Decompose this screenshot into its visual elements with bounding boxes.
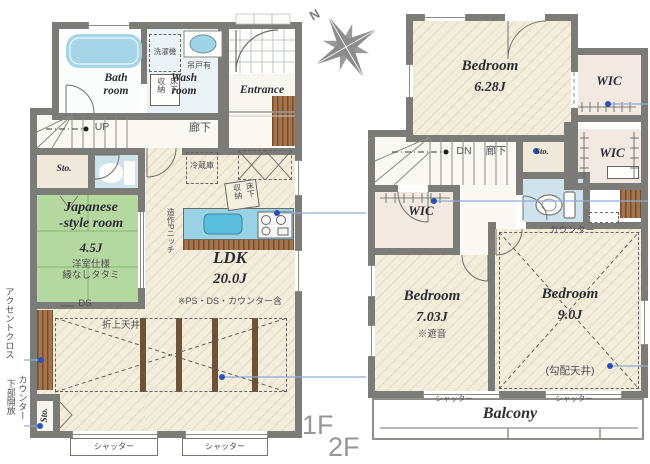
window (72, 431, 158, 438)
p-niche-label: 造作Pニッチ (166, 196, 175, 266)
shoe-cabinet (272, 96, 295, 146)
japanese-room-size: 4.5J (42, 241, 140, 256)
bedroom2-name: Bedroom (380, 288, 484, 305)
corridor-1f-label: 廊下 (180, 122, 220, 135)
wall (516, 179, 523, 195)
bedroom2-size: 7.03J (380, 310, 484, 326)
storage1-label: Sto. (50, 164, 78, 175)
window (641, 300, 648, 345)
louver-2f (620, 188, 641, 218)
shutter-box-left-1f: シャッター (70, 438, 158, 456)
wall (488, 222, 495, 392)
underfloor-storage-kitchen-label: 床下 収納 (229, 181, 257, 200)
hanging-cupboard-label: 吊戸有 (181, 61, 217, 70)
ldk-size: 20.0J (195, 271, 265, 288)
underfloor-storage-kitchen-box: 床下 収納 (224, 179, 260, 211)
window (295, 160, 302, 196)
entrance-porch-floor (229, 29, 295, 74)
window (185, 431, 268, 438)
balcony-label: Balcony (470, 405, 550, 423)
accent-cloth-label: アクセントクロス (4, 283, 14, 363)
niche-box-2f (607, 166, 639, 179)
floor-plan-canvas: 床下 収納 床下 収納 (0, 0, 650, 464)
corridor-2f-label: 廊下 (478, 145, 514, 157)
bedroom2-note: ※遮音 (380, 330, 484, 341)
raised-ceiling-label: 折上天井 (98, 321, 144, 332)
fridge-label: 冷蔵庫 (187, 161, 217, 170)
window (368, 265, 375, 297)
storage2-label: Sto. (39, 398, 49, 432)
bedroom1-floor (413, 21, 571, 135)
wall (571, 48, 648, 55)
window (88, 22, 130, 29)
wall (516, 172, 590, 179)
wall (30, 188, 145, 195)
wic2-label: WIC (583, 146, 641, 161)
ldk-note: ※PS・DS・カウンター含 (163, 296, 297, 306)
wall (88, 155, 95, 192)
compass-north-label: N (303, 4, 328, 27)
raised-ceiling-outline (55, 318, 287, 392)
toilet-1f-floor (95, 155, 138, 188)
pantry-closet (238, 150, 292, 180)
storage-2f-label: Sto. (527, 147, 557, 157)
wash-room-label: Wash room (158, 72, 210, 98)
bath-room-label: Bath room (88, 72, 144, 98)
floor2-label: 2F (328, 432, 372, 463)
dn-label: DN (450, 145, 478, 157)
window (424, 14, 466, 21)
bedroom1-size: 6.28J (440, 80, 540, 96)
bedroom1-name: Bedroom (440, 58, 540, 75)
ds-label: DS (72, 299, 98, 310)
wall (222, 22, 302, 29)
ldk-name: LDK (195, 248, 265, 268)
counter-2f-box (589, 212, 619, 223)
bath-room-floor (59, 29, 141, 113)
wall (368, 185, 398, 192)
wic3-floor (375, 192, 453, 255)
bedroom3-note: (勾配天井) (532, 365, 608, 377)
wall (53, 394, 60, 438)
kitchen-counter (183, 208, 294, 240)
wall (37, 148, 145, 155)
wall (59, 113, 222, 120)
accent-wall-strip (37, 310, 53, 390)
wall (406, 135, 578, 142)
counter-open-label: カウンター 下部開放 (4, 362, 27, 432)
wic1-label: WIC (580, 74, 638, 89)
japanese-room-name: Japanese -style room (42, 200, 140, 232)
wall (52, 22, 59, 120)
entrance-label: Entrance (226, 84, 298, 97)
shutter-box-right-1f: シャッター (182, 438, 268, 456)
window (295, 250, 302, 292)
shutter-left-2f: シャッター (428, 395, 480, 404)
wall (52, 22, 230, 29)
wall (564, 122, 578, 190)
shutter-right-2f: シャッター (548, 395, 600, 404)
wall (571, 115, 648, 122)
bedroom3-name: Bedroom (518, 286, 622, 303)
washer-label: 洗濯機 (149, 48, 181, 57)
window (406, 64, 413, 98)
wall (368, 248, 460, 255)
wall (30, 108, 37, 438)
bedroom3-size: 9.0J (518, 308, 622, 324)
up-label: UP (89, 121, 115, 133)
wic1-opening (571, 72, 578, 108)
wall (368, 130, 375, 398)
wall (453, 185, 460, 255)
window (368, 325, 375, 357)
counter-2f-label: カウンター (544, 225, 600, 235)
wic3-label: WIC (392, 204, 450, 219)
japanese-room-note: 洋室仕様 縁なしタタミ (42, 260, 140, 282)
